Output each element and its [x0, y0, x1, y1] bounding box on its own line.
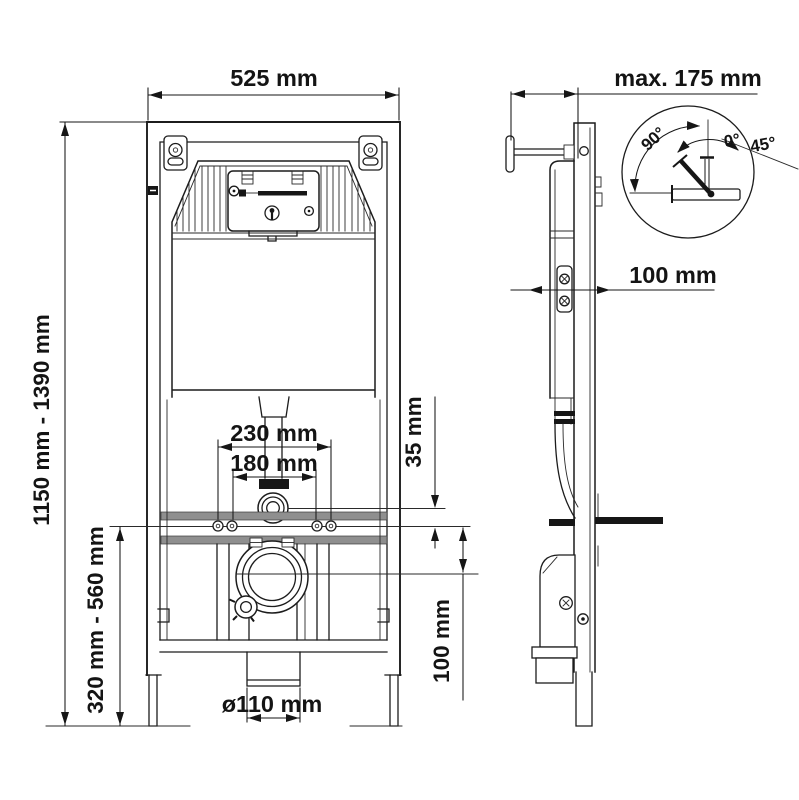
- side-foot: [532, 647, 592, 726]
- mounting-bracket-left: [164, 136, 187, 170]
- dim-inner-holes-label: 180 mm: [230, 450, 318, 476]
- anchor-pivot-mechanism: [672, 155, 740, 203]
- dim-outer-holes-label: 230 mm: [230, 420, 318, 446]
- dim-height-range-label: 1150 mm - 1390 mm: [29, 314, 54, 525]
- dimensions: 525 mm 1150 mm - 1390 mm 320 mm - 560 mm…: [29, 65, 762, 726]
- mounting-bracket-right: [359, 136, 382, 170]
- back-clips: [595, 177, 602, 206]
- waste-pipe-bottom: [247, 652, 300, 686]
- cross-rail-upper: [161, 512, 387, 520]
- pipe-coupling: [259, 479, 289, 489]
- side-fixing-plate: [557, 266, 572, 312]
- access-panel: [228, 171, 319, 241]
- side-frame-bar: [574, 123, 595, 672]
- technical-drawing: 90° 0° 45° 525 mm 1150 mm - 1390 mm 320 …: [0, 0, 799, 800]
- wall-anchor: [506, 136, 588, 172]
- dim-outlet-offset-label: 100 mm: [429, 599, 454, 683]
- side-view: [506, 123, 663, 726]
- drain-fitting: [230, 596, 258, 622]
- dim-width-label: 525 mm: [230, 65, 318, 91]
- angle-0-label: 0°: [722, 130, 742, 152]
- frame-bottom-rail: [146, 640, 401, 675]
- actuator-rod: [239, 190, 246, 197]
- angle-90-label: 90°: [637, 123, 669, 154]
- anchor-angle-detail: 90° 0° 45°: [622, 106, 798, 238]
- dim-front-distance-label: 100 mm: [629, 262, 717, 288]
- dim-depth-label: max. 175 mm: [614, 65, 762, 91]
- pan-support-shelf: [549, 519, 575, 526]
- dim-lower-range-label: 320 mm - 560 mm: [83, 526, 108, 714]
- dim-outlet-diameter-label: ø110 mm: [222, 691, 323, 717]
- dim-supply-offset-label: 35 mm: [401, 396, 426, 467]
- level-indicator: [148, 186, 158, 195]
- angle-45-label: 45°: [749, 133, 778, 156]
- side-elbow-housing: [540, 555, 588, 647]
